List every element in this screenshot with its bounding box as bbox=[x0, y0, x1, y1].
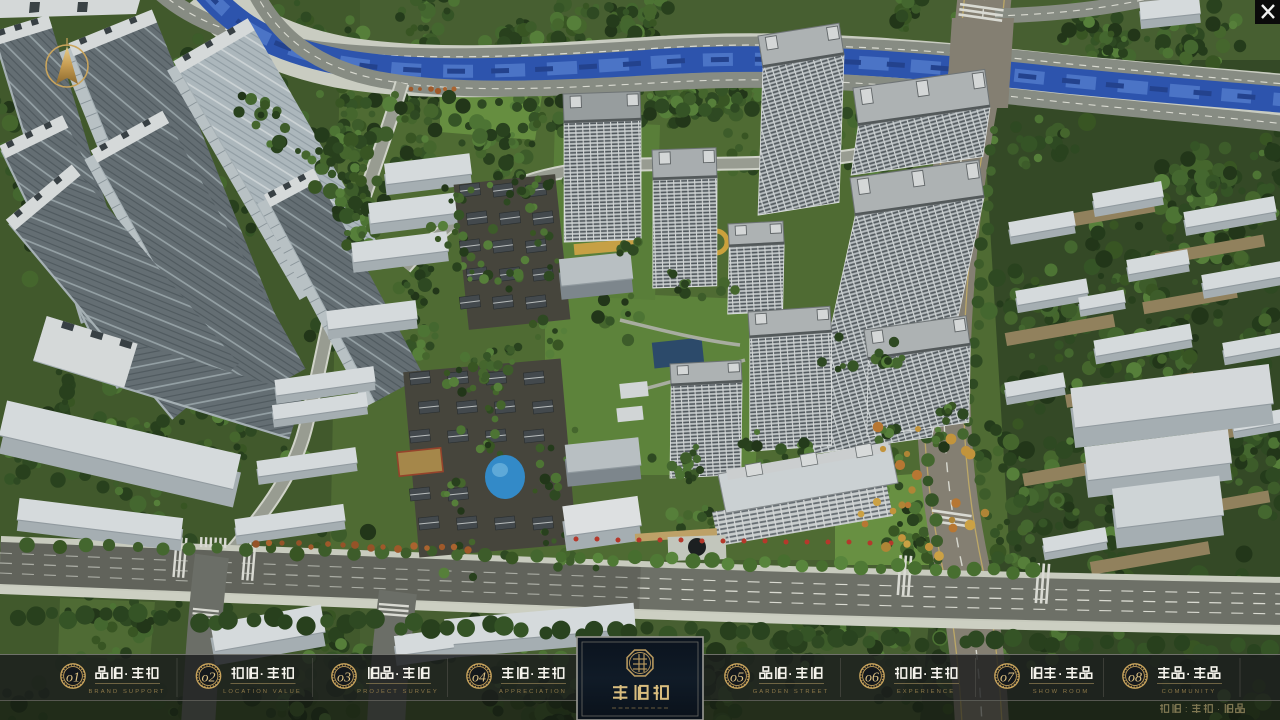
svg-text:o7: o7 bbox=[1000, 671, 1015, 686]
svg-text:·: · bbox=[125, 667, 129, 681]
svg-text:·: · bbox=[1187, 667, 1191, 681]
svg-text:COMMUNITY: COMMUNITY bbox=[1162, 689, 1217, 695]
svg-text:·: · bbox=[396, 667, 400, 681]
svg-text:o2: o2 bbox=[202, 671, 216, 686]
svg-text:·: · bbox=[1217, 704, 1220, 714]
svg-text::: : bbox=[1185, 704, 1188, 714]
svg-text:SHOW ROOM: SHOW ROOM bbox=[1033, 689, 1090, 695]
svg-text:APPRECIATION: APPRECIATION bbox=[499, 689, 567, 695]
svg-text:o6: o6 bbox=[865, 671, 879, 686]
svg-text:LOCATION VALUE: LOCATION VALUE bbox=[223, 689, 302, 695]
svg-text:·: · bbox=[260, 667, 264, 681]
svg-text:o3: o3 bbox=[337, 671, 351, 686]
svg-text:o8: o8 bbox=[1128, 671, 1142, 686]
svg-text:·: · bbox=[1059, 667, 1063, 681]
svg-text:GARDEN STREET: GARDEN STREET bbox=[753, 689, 830, 695]
svg-text:o5: o5 bbox=[730, 671, 744, 686]
svg-text:o4: o4 bbox=[472, 671, 486, 686]
svg-text:·: · bbox=[789, 667, 793, 681]
svg-text:o1: o1 bbox=[66, 671, 80, 686]
svg-text:EXPERIENCE: EXPERIENCE bbox=[897, 689, 955, 695]
svg-text:BRAND SUPPORT: BRAND SUPPORT bbox=[88, 689, 165, 695]
svg-text:PROJECT SURVEY: PROJECT SURVEY bbox=[357, 689, 439, 695]
svg-text:·: · bbox=[924, 667, 928, 681]
svg-text:·: · bbox=[531, 667, 535, 681]
